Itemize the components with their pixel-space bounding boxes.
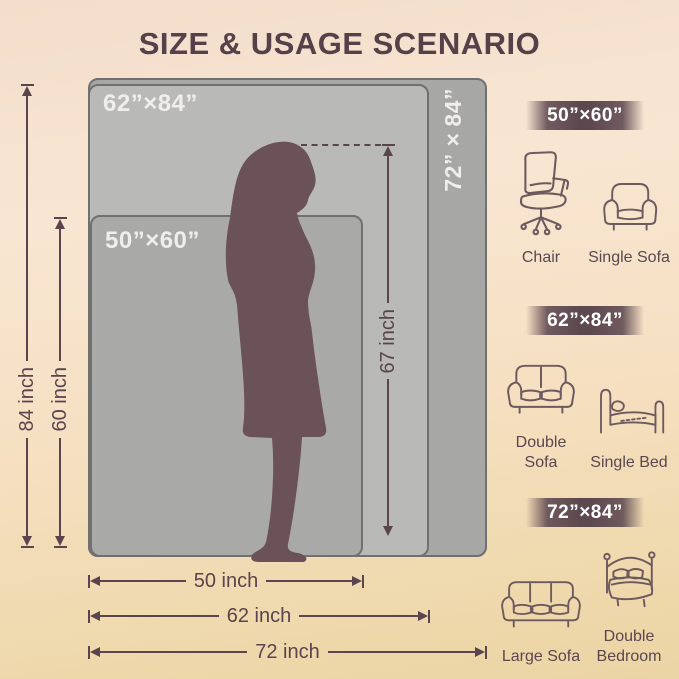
size-badge-62x84: 62”×84”	[526, 306, 644, 335]
arrow-cap	[54, 546, 67, 548]
large-sofa-icon	[494, 569, 588, 639]
arrowhead-down	[22, 536, 32, 546]
arrow-line	[299, 615, 418, 617]
dimension-label-84inch: 84 inch	[16, 361, 39, 438]
dimension-label-62inch: 62 inch	[219, 605, 300, 628]
arrow-line	[100, 615, 219, 617]
usage-label: Single Sofa	[588, 248, 670, 268]
scenario-icons: Double Sofa Single Bed	[497, 351, 673, 472]
single-bed-icon	[588, 375, 670, 445]
arrowhead-up	[55, 219, 65, 229]
usage-double-bed: Double Bedroom	[585, 543, 673, 666]
head-height-dashed-line	[301, 144, 381, 146]
infographic: SIZE & USAGE SCENARIO 62”×84” 50”×60” 72…	[0, 0, 679, 679]
arrow-line	[26, 96, 28, 361]
rect-label-72x84: 72”×84”	[440, 88, 467, 192]
arrowhead-down	[55, 536, 65, 546]
arrow-cap	[362, 575, 364, 588]
woman-silhouette	[218, 140, 330, 568]
arrow-line	[387, 379, 389, 526]
arrow-line	[328, 651, 475, 653]
arrow-line	[100, 580, 186, 582]
arrowhead-down	[383, 526, 393, 536]
scenario-72x84: 72”×84”	[492, 498, 678, 666]
arrowhead-left	[90, 576, 100, 586]
arrow-line	[266, 580, 352, 582]
arrowhead-up	[383, 146, 393, 156]
dimension-arrow-62inch: 62 inch	[88, 607, 430, 625]
double-sofa-icon	[498, 351, 584, 425]
rect-label-50x60: 50”×60”	[105, 227, 200, 255]
arrowhead-left	[90, 647, 100, 657]
arrow-line	[59, 438, 61, 536]
arrow-line	[59, 229, 61, 361]
size-badge-50x60: 50”×60”	[526, 101, 644, 130]
double-bed-icon	[590, 543, 668, 619]
usage-large-sofa: Large Sofa	[497, 569, 585, 667]
usage-label: Single Bed	[590, 453, 667, 473]
arrow-line	[100, 651, 247, 653]
dimension-arrow-84inch: 84 inch	[17, 84, 37, 548]
arrow-cap	[428, 610, 430, 623]
dimension-arrow-72inch: 72 inch	[88, 643, 487, 661]
dimension-arrow-67inch: 67 inch	[378, 144, 398, 536]
size-badge-72x84: 72”×84”	[526, 498, 644, 527]
usage-label: Double Bedroom	[585, 627, 673, 666]
usage-label: Large Sofa	[502, 647, 580, 667]
arrowhead-left	[90, 611, 100, 621]
dimension-label-72inch: 72 inch	[247, 641, 328, 664]
scenario-icons: Chair Single Sofa	[497, 146, 673, 268]
usage-single-bed: Single Bed	[585, 375, 673, 473]
dimension-label-60inch: 60 inch	[49, 361, 72, 438]
scenario-50x60: 50”×60” Chair	[492, 101, 678, 268]
dimension-arrow-60inch: 60 inch	[50, 217, 70, 548]
arrowhead-right	[418, 611, 428, 621]
scenario-icons: Large Sofa Double Bedroom	[497, 543, 673, 666]
arrowhead-right	[475, 647, 485, 657]
arrow-line	[387, 156, 389, 303]
rect-label-62x84: 62”×84”	[103, 90, 198, 118]
page-title: SIZE & USAGE SCENARIO	[0, 26, 679, 62]
dimension-arrow-50inch: 50 inch	[88, 572, 364, 590]
usage-label: Chair	[522, 248, 560, 268]
arrow-cap	[21, 546, 34, 548]
usage-label: Double Sofa	[497, 433, 585, 472]
arrow-cap	[485, 646, 487, 659]
scenario-62x84: 62”×84” Do	[492, 306, 678, 472]
dimension-label-50inch: 50 inch	[186, 570, 267, 593]
arrowhead-right	[352, 576, 362, 586]
usage-chair: Chair	[497, 146, 585, 268]
arrow-line	[26, 438, 28, 536]
usage-single-sofa: Single Sofa	[585, 168, 673, 268]
single-sofa-icon	[591, 168, 667, 240]
dimension-label-67inch: 67 inch	[377, 303, 400, 380]
office-chair-icon	[502, 146, 580, 240]
usage-double-sofa: Double Sofa	[497, 351, 585, 472]
arrowhead-up	[22, 86, 32, 96]
